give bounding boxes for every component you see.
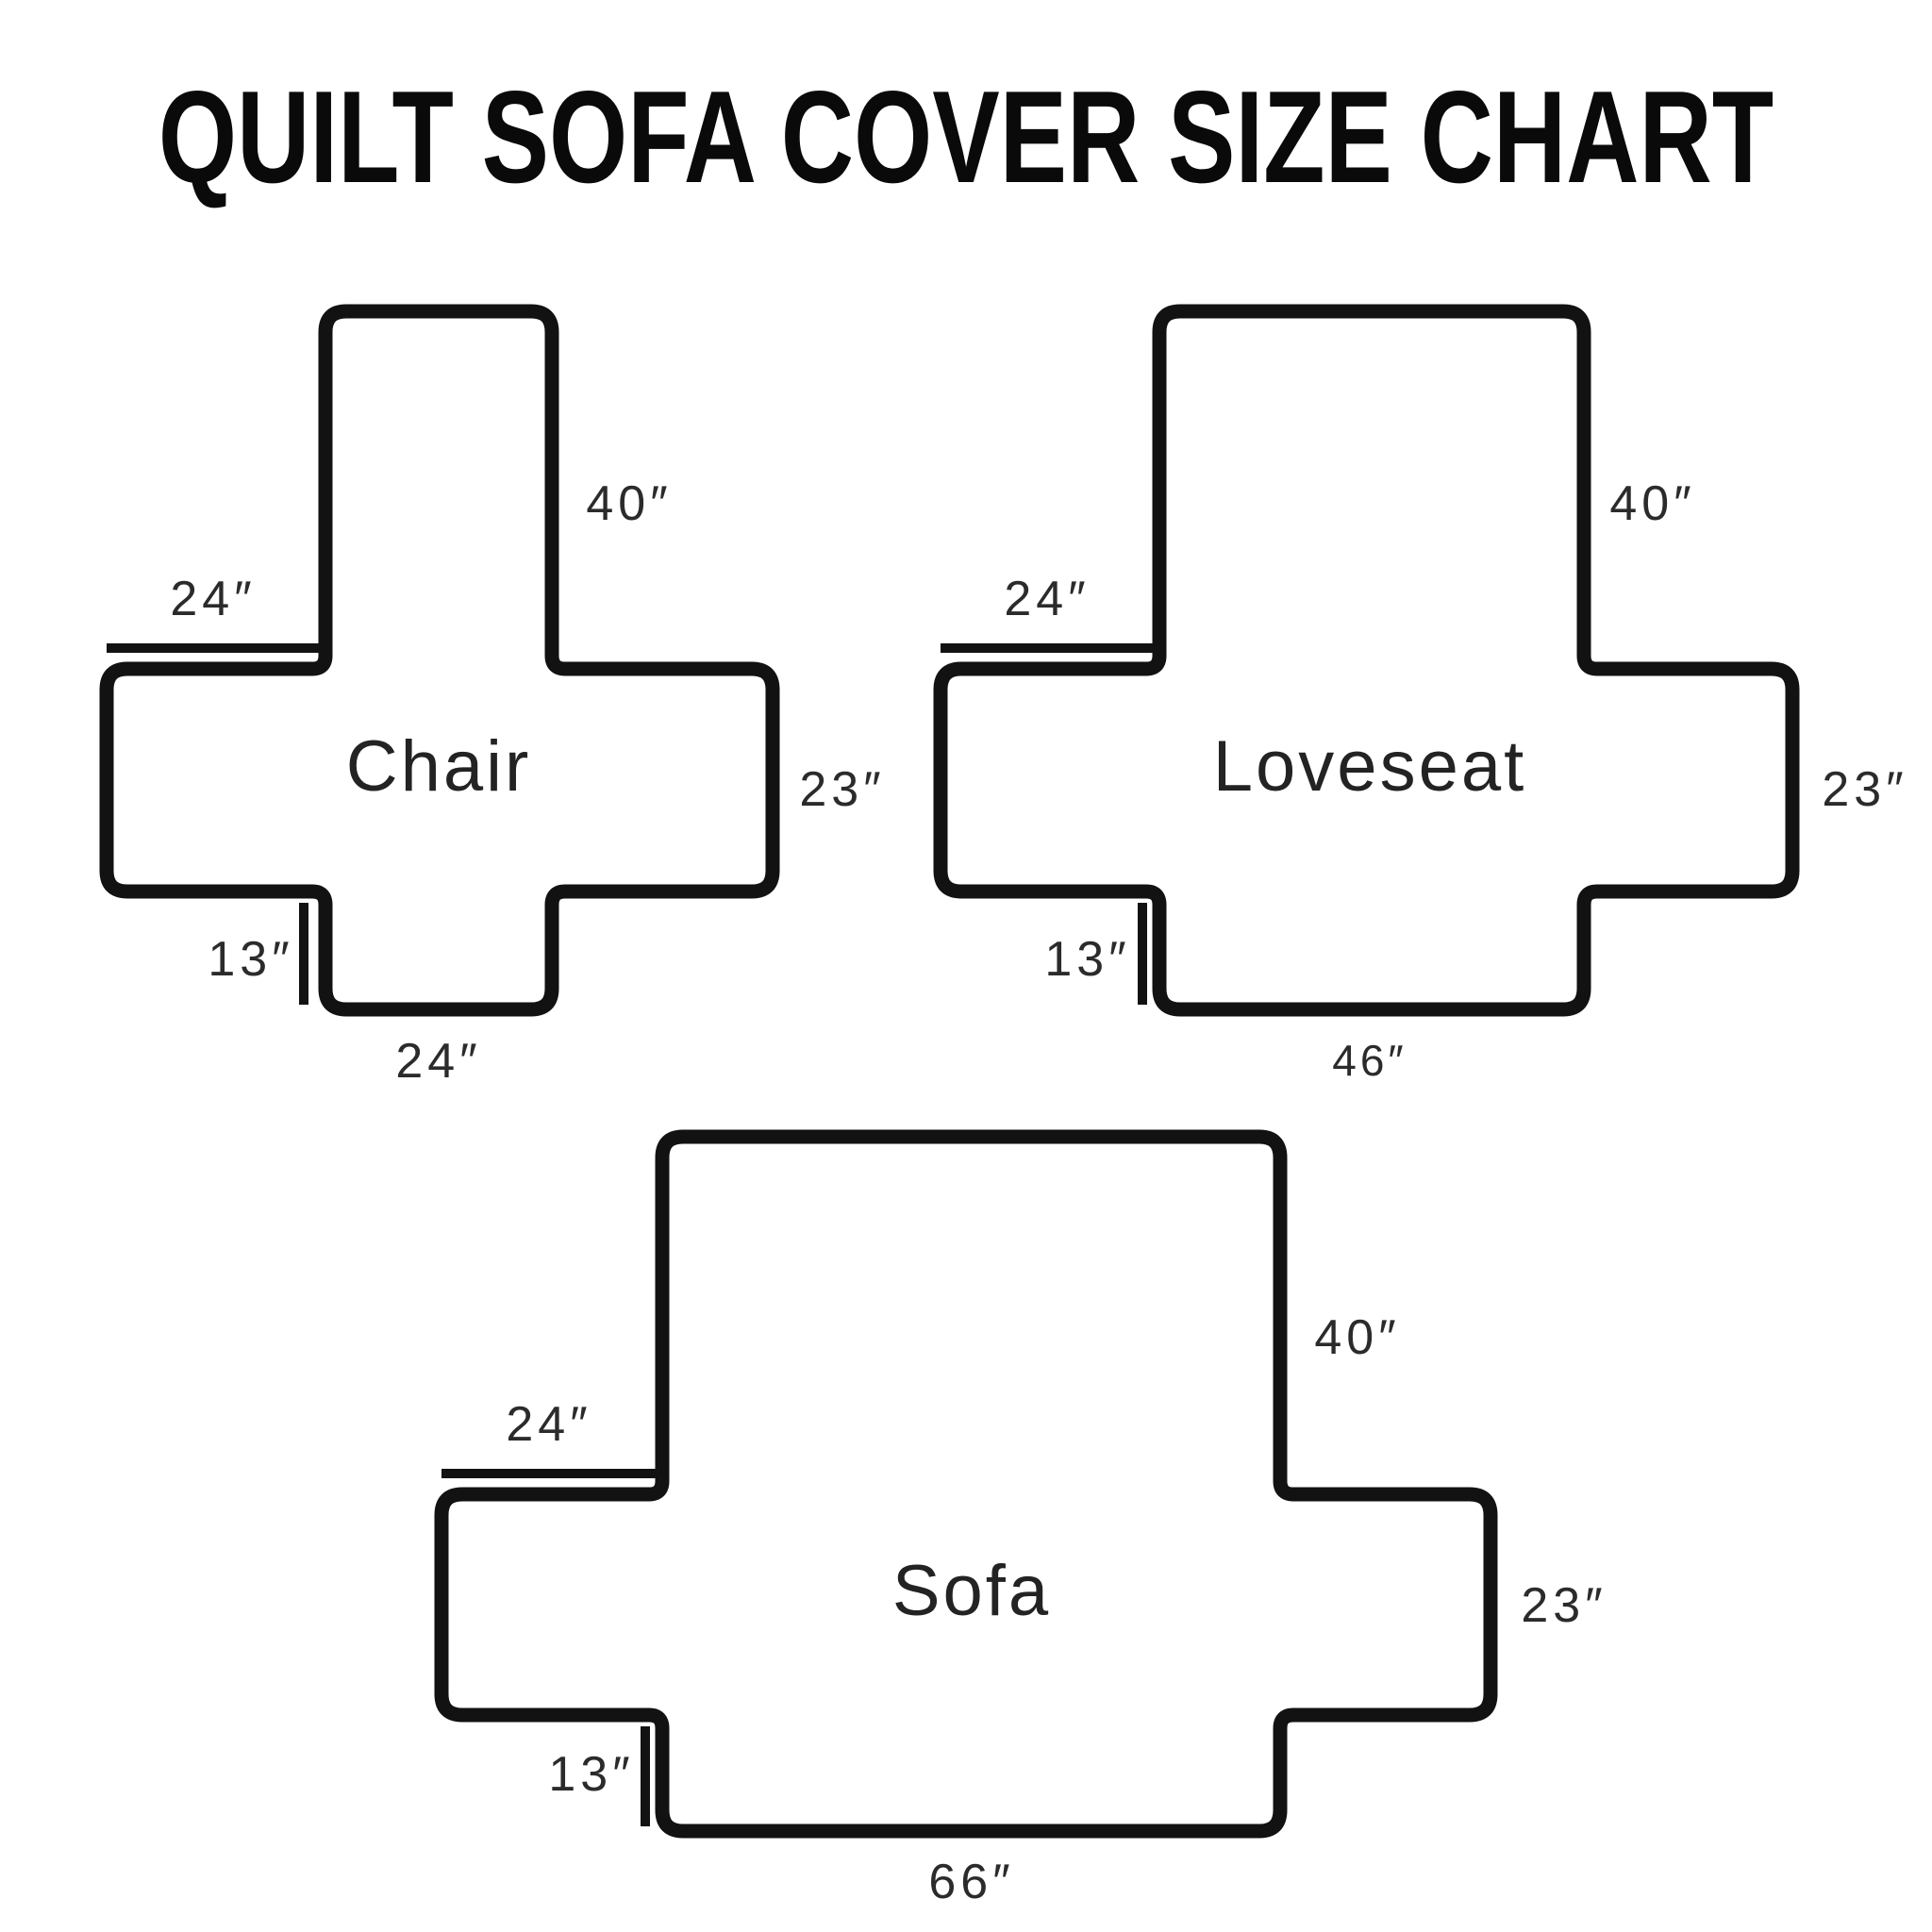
loveseat-arm-height-label: 23″ — [1822, 762, 1907, 817]
loveseat-bottom-width-label: 46″ — [1332, 1036, 1407, 1085]
sofa-bottom-width-label: 66″ — [928, 1855, 1014, 1909]
chair-name-label: Chair — [346, 726, 532, 807]
chair-arm-height-label: 23″ — [799, 762, 885, 817]
chair-bottom-width-label: 24″ — [395, 1034, 481, 1089]
loveseat-name-label: Loveseat — [1213, 726, 1526, 807]
chair-arm-top-width-label: 24″ — [170, 572, 256, 626]
sofa-outline — [441, 1137, 1491, 1831]
sofa-name-label: Sofa — [892, 1551, 1051, 1631]
sofa-arm-height-label: 23″ — [1521, 1578, 1607, 1633]
sofa-arm-top-width-label: 24″ — [506, 1397, 591, 1452]
loveseat-arm-top-width-label: 24″ — [1004, 572, 1090, 626]
sofa-skirt-depth-label: 13″ — [548, 1747, 634, 1802]
size-chart-figure: QUILT SOFA COVER SIZE CHART Chair 40″ 24… — [0, 0, 1932, 1932]
sofa-back-height-label: 40″ — [1314, 1310, 1400, 1365]
chair-outline — [107, 311, 773, 1009]
loveseat-outline — [941, 311, 1792, 1009]
loveseat-skirt-depth-label: 13″ — [1044, 932, 1130, 987]
quilt-sofa-cover-size-chart: QUILT SOFA COVER SIZE CHART Chair 40″ 24… — [0, 0, 1932, 1932]
chair-back-height-label: 40″ — [586, 476, 672, 531]
sofa-diagram: Sofa 40″ 24″ 23″ 13″ 66″ — [441, 1137, 1607, 1909]
loveseat-back-height-label: 40″ — [1609, 476, 1695, 531]
page-title: QUILT SOFA COVER SIZE CHART — [158, 65, 1774, 211]
page-title-group: QUILT SOFA COVER SIZE CHART — [158, 65, 1774, 211]
chair-skirt-depth-label: 13″ — [208, 932, 293, 987]
loveseat-diagram: Loveseat 40″ 24″ 23″ 13″ 46″ — [941, 311, 1908, 1085]
chair-diagram: Chair 40″ 24″ 23″ 13″ 24″ — [107, 311, 886, 1089]
